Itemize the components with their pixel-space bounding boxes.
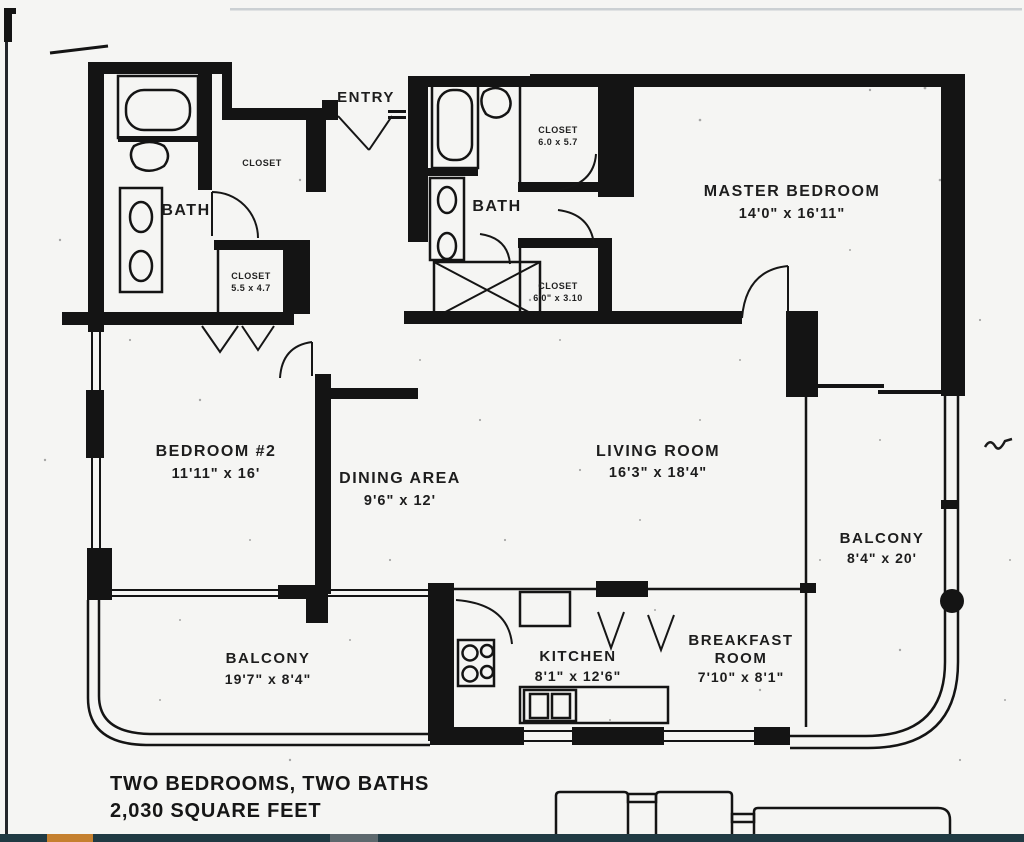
label-bedroom2-size: 11'11" x 16' (172, 466, 261, 482)
bottom-bar (0, 834, 1024, 842)
label-breakfast-size: 7'10" x 8'1" (698, 669, 784, 685)
label-balcony-bottom-size: 19'7" x 8'4" (225, 671, 311, 687)
label-entry: ENTRY (337, 89, 395, 106)
label-bath2: BATH (472, 198, 521, 215)
label-closet-bottom-name: CLOSET (538, 281, 578, 291)
label-closet-top-name: CLOSET (538, 125, 578, 135)
paper-background (0, 0, 1024, 842)
label-master-bedroom-size: 14'0" x 16'11" (739, 206, 845, 222)
bottom-bar-strip (0, 834, 1024, 842)
label-breakfast-name2: ROOM (715, 650, 768, 667)
label-bedroom2-name: BEDROOM #2 (156, 443, 277, 460)
label-closet-hall-size: 5.5 x 4.7 (231, 283, 271, 293)
summary-line2: 2,030 SQUARE FEET (110, 800, 321, 822)
label-balcony-right-name: BALCONY (840, 530, 925, 547)
label-living-size: 16'3" x 18'4" (609, 465, 707, 481)
label-breakfast-name1: BREAKFAST (688, 632, 793, 649)
floor-plan-drawing: ENTRY BATH BATH CLOSET CLOSET 5.5 x 4.7 … (0, 0, 1024, 842)
label-kitchen-name: KITCHEN (539, 648, 616, 665)
label-closet-top-size: 6.0 x 5.7 (538, 137, 578, 147)
summary-line1: TWO BEDROOMS, TWO BATHS (110, 773, 429, 795)
label-balcony-bottom-name: BALCONY (226, 650, 311, 667)
bottom-bar-orange-segment (47, 834, 93, 842)
label-dining-name: DINING AREA (339, 470, 461, 487)
floor-plan-page: ENTRY BATH BATH CLOSET CLOSET 5.5 x 4.7 … (0, 0, 1024, 842)
label-dining-size: 9'6" x 12' (364, 493, 436, 509)
label-bath1: BATH (161, 202, 210, 219)
label-closet-hall-name: CLOSET (231, 271, 271, 281)
label-kitchen-size: 8'1" x 12'6" (535, 668, 621, 684)
label-closet-bottom-size: 6'0" x 3.10 (533, 293, 582, 303)
label-balcony-right-size: 8'4" x 20' (847, 550, 917, 566)
bottom-bar-gray-segment (330, 834, 378, 842)
label-master-bedroom-name: MASTER BEDROOM (704, 183, 881, 200)
label-closet-entry: CLOSET (242, 158, 282, 168)
label-living-name: LIVING ROOM (596, 443, 720, 460)
